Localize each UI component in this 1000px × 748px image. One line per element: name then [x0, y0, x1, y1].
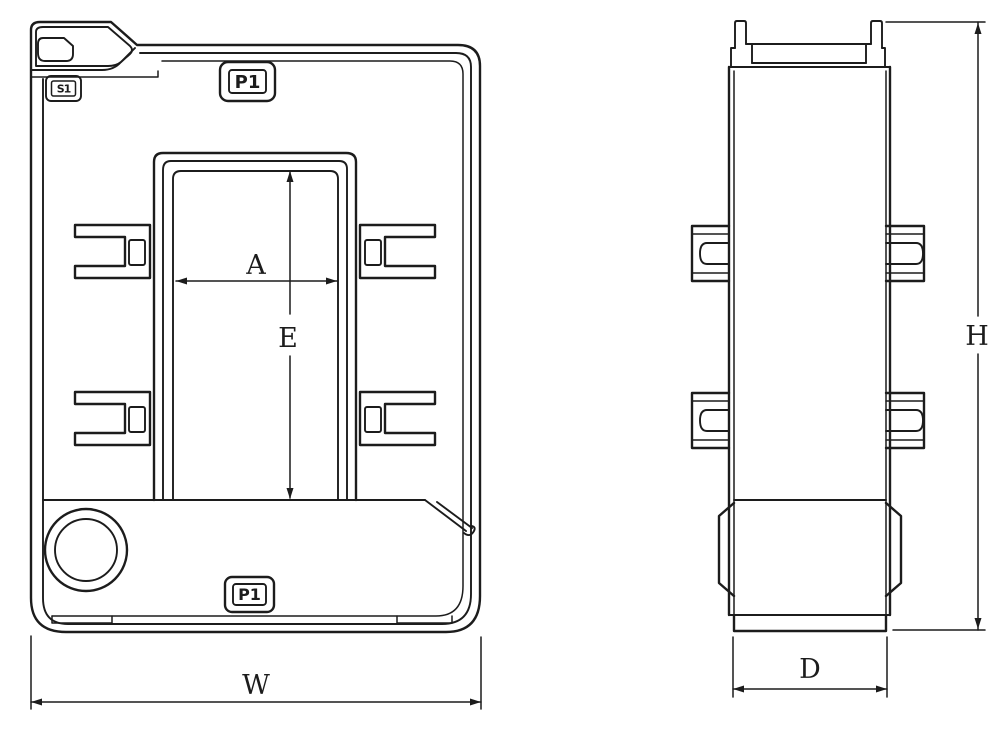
rail-clip-upper-right	[886, 226, 924, 281]
window-frame-outer	[154, 153, 356, 500]
base-bulge-left	[719, 503, 734, 596]
fork-outline	[360, 392, 435, 445]
p1-bottom-label: P1	[238, 585, 261, 604]
drawing-canvas: S1 P1 P1	[0, 0, 1000, 748]
dim-a-arrow-left	[176, 278, 187, 285]
bushing-outer	[45, 509, 127, 591]
dimension-a: A	[176, 250, 337, 285]
dim-h-arrow-top	[975, 23, 982, 34]
fork-slot	[365, 240, 381, 265]
base-bottom-strip	[734, 616, 886, 631]
terminal-badge-p1-top: P1	[220, 62, 275, 101]
spout-diagonal-outer	[425, 500, 466, 531]
dim-d-arrow-left	[733, 686, 744, 693]
window-frame-inner	[173, 171, 338, 500]
snap-tab-left	[731, 21, 752, 67]
dim-w-arrow-right	[470, 699, 481, 706]
clip-slot	[700, 243, 729, 264]
dim-d-arrow-right	[876, 686, 887, 693]
fork-slot	[129, 407, 145, 432]
foot-pad-left	[52, 616, 112, 623]
snap-tab-right	[866, 21, 885, 67]
case-outline-outer	[31, 22, 480, 632]
fork-slot	[129, 240, 145, 265]
dim-h-label: H	[965, 321, 989, 352]
bushing-inner	[55, 519, 117, 581]
dim-a-arrow-right	[326, 278, 337, 285]
foot-pad-right	[397, 616, 452, 623]
fork-slot	[365, 407, 381, 432]
dim-e-label: E	[278, 323, 298, 354]
case-outline-inner	[52, 61, 463, 616]
mounting-fork-upper-right	[360, 225, 435, 278]
dimension-e: E	[278, 171, 298, 499]
p1-top-label: P1	[235, 72, 261, 93]
terminal-badge-p1-bottom: P1	[225, 577, 274, 612]
clip-slot	[700, 410, 729, 431]
seal-tab-window	[38, 38, 73, 61]
base-split-line	[43, 500, 475, 535]
dimension-d: D	[733, 637, 887, 697]
mounting-fork-lower-right	[360, 392, 435, 445]
dim-h-arrow-bottom	[975, 618, 982, 629]
clip-slot	[886, 243, 923, 264]
dim-w-arrow-left	[31, 699, 42, 706]
window-frame-mid	[163, 161, 347, 500]
s1-label: S1	[57, 83, 71, 96]
dim-w-label: W	[242, 670, 270, 701]
rail-clip-lower-right	[886, 393, 924, 448]
mounting-fork-lower-left	[75, 392, 150, 445]
mounting-fork-upper-left	[75, 225, 150, 278]
dim-e-arrow-bottom	[287, 488, 294, 499]
rail-clip-upper-left	[692, 226, 729, 281]
front-view: S1 P1 P1	[31, 22, 481, 709]
bushing-circle	[45, 509, 127, 591]
tab-base	[866, 44, 885, 67]
terminal-badge-s1: S1	[46, 76, 81, 101]
fork-outline	[360, 225, 435, 278]
base-bulge-right	[886, 503, 901, 596]
side-view: H D	[692, 21, 989, 697]
spout-diagonal-inner	[437, 502, 472, 528]
case-outline-mid	[43, 53, 471, 624]
fork-outline	[75, 225, 150, 278]
technical-drawing: S1 P1 P1	[0, 0, 1000, 748]
tab-neck	[871, 21, 882, 48]
window-frame	[154, 153, 356, 500]
fork-outline	[75, 392, 150, 445]
dim-d-label: D	[799, 654, 821, 685]
clip-slot	[886, 410, 923, 431]
rail-clip-lower-left	[692, 393, 729, 448]
dimension-w: W	[31, 636, 481, 709]
tab-base	[731, 44, 752, 67]
dim-e-arrow-top	[287, 171, 294, 182]
dim-a-label: A	[245, 250, 266, 281]
tab-neck	[735, 21, 746, 48]
